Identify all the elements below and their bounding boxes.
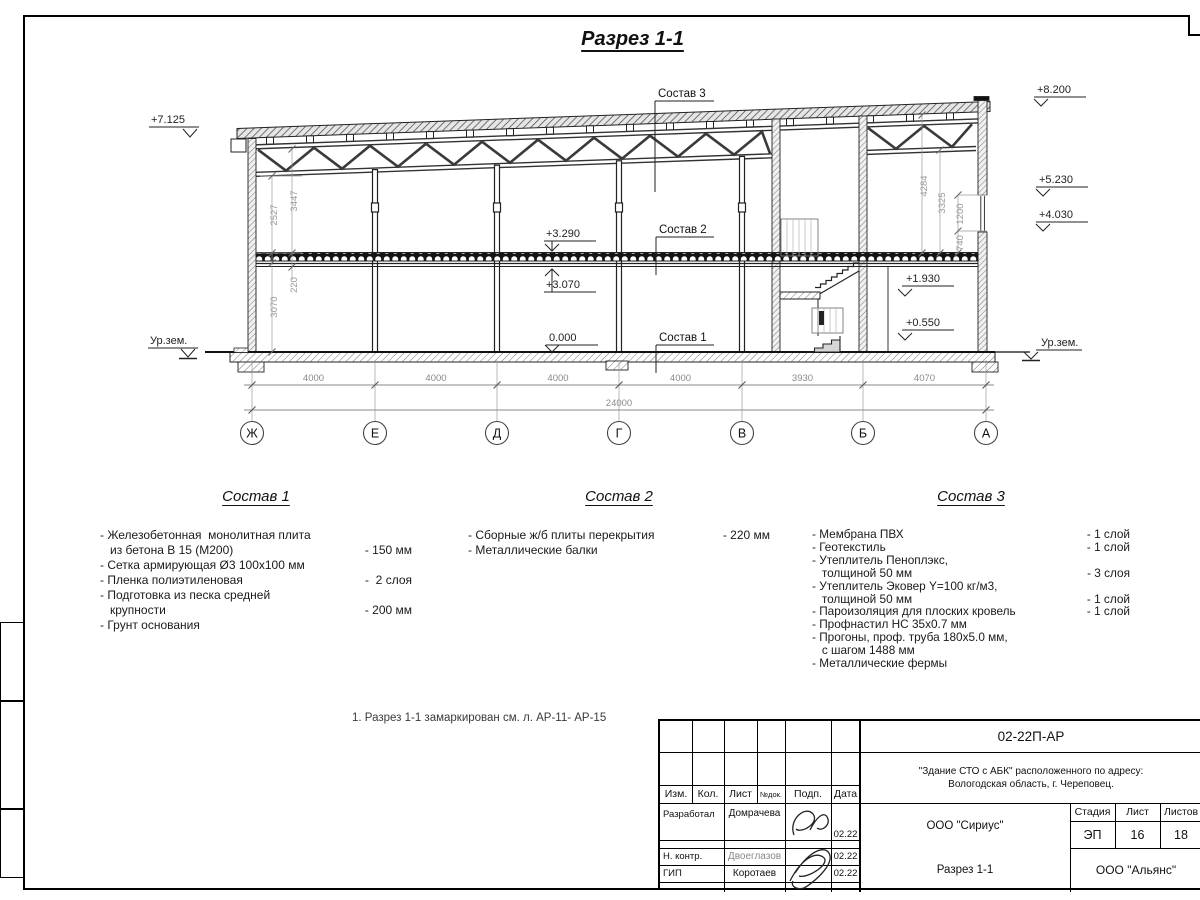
elev-left-top: +7.125 [151,114,185,126]
axis-label: Г [616,427,623,441]
roof-left-cap [231,139,246,152]
vdim-2527: 2527 [269,204,280,225]
axis-label: В [738,427,746,441]
composition-block-3: Состав 3 - Мембрана ПВХ- 1 слой - Геотек… [812,488,1130,670]
stair-post [819,311,824,325]
elev-right-mid2: +4.030 [1039,209,1073,221]
vdim-3070: 3070 [269,296,280,317]
callout-sostav1: Состав 1 [659,332,707,344]
dim-zh-e: 4000 [303,373,324,384]
stair-landing [780,292,820,299]
parapet-cap [974,97,989,101]
vdim-4284: 4284 [919,175,930,196]
composition-block-1: Состав 1 - Железобетонная монолитная пли… [100,488,412,633]
stair-wall-left [772,119,780,352]
axis-label: А [982,427,991,441]
composition-title: Состав 1 [100,488,412,505]
hollow-core-slab [256,253,978,262]
foundation-pad [238,362,264,372]
elev-mezz-lower: +0.550 [906,317,940,329]
dim-total: 24000 [606,398,632,409]
ground-floor-slab [230,352,995,362]
axis-label: Е [371,427,379,441]
roof-layers-band [237,102,990,139]
composition-block-2: Состав 2 - Сборные ж/б плиты перекрытия-… [468,488,770,558]
dim-d-g: 4000 [547,373,568,384]
vdim-220: 220 [289,277,300,293]
dim-e-d: 4000 [425,373,446,384]
wall-axis-zh [248,139,256,353]
column-splice [494,203,501,212]
vdim-1200: 1200 [955,203,966,224]
truss-web-left [258,132,770,171]
drawing-sheet: Разрез 1-1 [0,0,1200,900]
axis-label: Б [859,427,867,441]
margin-box-2 [0,700,24,810]
dim-v-b: 3930 [792,373,813,384]
wall-axis-a-lower [978,232,987,352]
staircase [780,219,859,352]
column-splice [616,203,623,212]
vdim-740: 740 [955,235,966,251]
elev-zero: 0.000 [549,332,577,344]
stair-wall-right [859,116,867,352]
stair-flight-lower [806,336,840,352]
foundation-pad [606,361,628,370]
composition-title: Состав 2 [468,488,770,505]
elev-floor2-bottom: +3.070 [546,279,580,291]
column-splice [372,203,379,212]
ground-label-left: Ур.зем. [150,335,187,347]
elev-right-mid1: +5.230 [1039,174,1073,186]
signature-icon [660,721,1200,892]
axis-label: Ж [246,427,258,441]
axis-label: Д [493,427,502,441]
stair-railing-upper [781,219,818,256]
bottom-dims: 4000 4000 4000 4000 3930 4070 24000 Ж Е … [241,360,998,445]
plinth-ledge [234,348,248,353]
truss-web-right [868,124,972,149]
column-splice [739,203,746,212]
ground-label-right: Ур.зем. [1041,337,1078,349]
margin-box-3 [0,808,24,878]
callout-sostav2: Состав 2 [659,224,707,236]
margin-box-1 [0,622,24,702]
elev-mezz-upper: +1.930 [906,273,940,285]
dim-b-a: 4070 [914,373,935,384]
section-drawing: Состав 3 Состав 2 Состав 1 +7.125 Ур.зем… [0,0,1200,475]
elev-right-top: +8.200 [1037,84,1071,96]
composition-title: Состав 3 [812,488,1130,505]
callout-sostav3: Состав 3 [658,88,706,100]
vdim-3325: 3325 [937,192,948,213]
roof-assembly [231,102,990,177]
wall-axis-a-upper [978,100,987,195]
foundation-pad [972,362,998,372]
title-block: 02-22П-АР "Здание СТО с АБК" расположенн… [658,719,1200,890]
stair-railing-lower [812,308,843,333]
vdim-3447: 3447 [289,190,300,211]
drawing-note: 1. Разрез 1-1 замаркирован см. л. АР-11-… [352,712,606,724]
dim-g-v: 4000 [670,373,691,384]
elev-floor2-top: +3.290 [546,228,580,240]
